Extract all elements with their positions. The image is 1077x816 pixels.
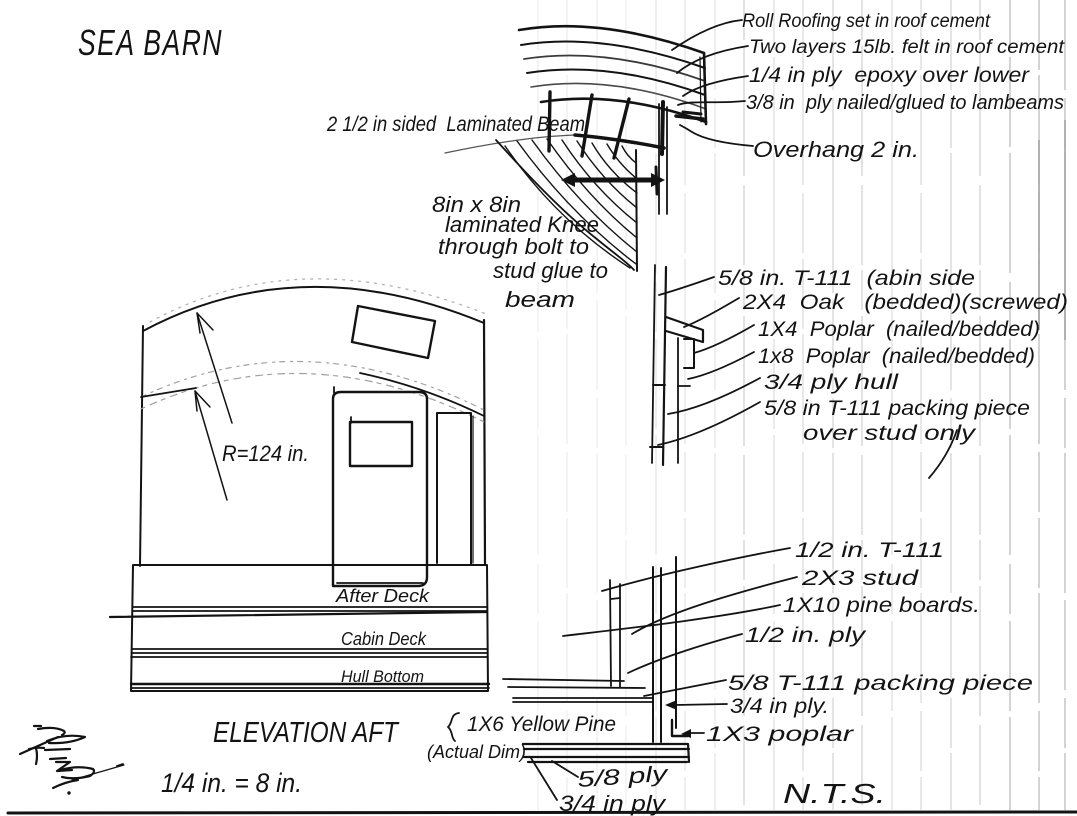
svg-text:1x8 Poplar (nailed/bedded): 1x8 Poplar (nailed/bedded) — [758, 345, 1035, 368]
svg-text:stud glue to: stud glue to — [493, 258, 608, 283]
svg-text:3/4 ply hull: 3/4 ply hull — [764, 371, 900, 394]
svg-text:5/8 in. T-111 (abin side: 5/8 in. T-111 (abin side — [718, 267, 975, 290]
svg-text:1X6 Yellow Pine: 1X6 Yellow Pine — [467, 713, 616, 736]
svg-text:(Actual Dim): (Actual Dim) — [427, 742, 526, 762]
svg-text:3/8 in ply nailed/glued to la: 3/8 in ply nailed/glued to lambeams — [746, 92, 1064, 114]
svg-text:Cabin Deck: Cabin Deck — [341, 629, 427, 649]
svg-text:1X3 poplar: 1X3 poplar — [706, 723, 854, 746]
svg-text:N.T.S.: N.T.S. — [783, 778, 886, 809]
svg-text:2X4 Oak (bedded)(screwed): 2X4 Oak (bedded)(screwed) — [742, 291, 1068, 314]
svg-text:5/8 ply: 5/8 ply — [577, 761, 671, 792]
svg-text:5/8 T-111 packing piece: 5/8 T-111 packing piece — [728, 672, 1033, 695]
svg-text:Hull Bottom: Hull Bottom — [341, 667, 424, 686]
svg-text:3/4 in ply: 3/4 in ply — [559, 791, 667, 816]
svg-text:R=124 in.: R=124 in. — [222, 441, 309, 466]
svg-text:After Deck: After Deck — [335, 586, 430, 606]
svg-text:beam: beam — [505, 287, 575, 312]
svg-text:1/2 in. T-111: 1/2 in. T-111 — [795, 539, 944, 562]
svg-text:through bolt to: through bolt to — [438, 234, 589, 259]
svg-text:3/4 in ply.: 3/4 in ply. — [730, 695, 829, 718]
svg-text:1/4 in. = 8 in.: 1/4 in. = 8 in. — [161, 768, 302, 798]
svg-text:over stud only: over stud only — [803, 422, 977, 445]
svg-text:1X4 Poplar (nailed/bedded): 1X4 Poplar (nailed/bedded) — [758, 318, 1040, 341]
svg-text:1/2 in. ply: 1/2 in. ply — [745, 624, 867, 647]
svg-text:2 1/2 in sided Laminated Beam: 2 1/2 in sided Laminated Beam — [326, 113, 585, 136]
svg-text:1X10 pine boards.: 1X10 pine boards. — [783, 594, 980, 617]
svg-text:Two layers 15lb. felt in roof: Two layers 15lb. felt in roof cement — [749, 37, 1065, 58]
svg-text:Overhang 2 in.: Overhang 2 in. — [753, 137, 919, 162]
svg-text:2X3 stud: 2X3 stud — [801, 567, 920, 590]
svg-text:SEA BARN: SEA BARN — [78, 22, 223, 63]
svg-text:5/8 in T-111 packing piece: 5/8 in T-111 packing piece — [764, 397, 1030, 420]
svg-text:ELEVATION AFT: ELEVATION AFT — [213, 717, 400, 749]
svg-text:1/4 in ply epoxy over lower: 1/4 in ply epoxy over lower — [749, 64, 1030, 87]
svg-text:Roll Roofing set in roof cemen: Roll Roofing set in roof cement — [742, 11, 991, 32]
